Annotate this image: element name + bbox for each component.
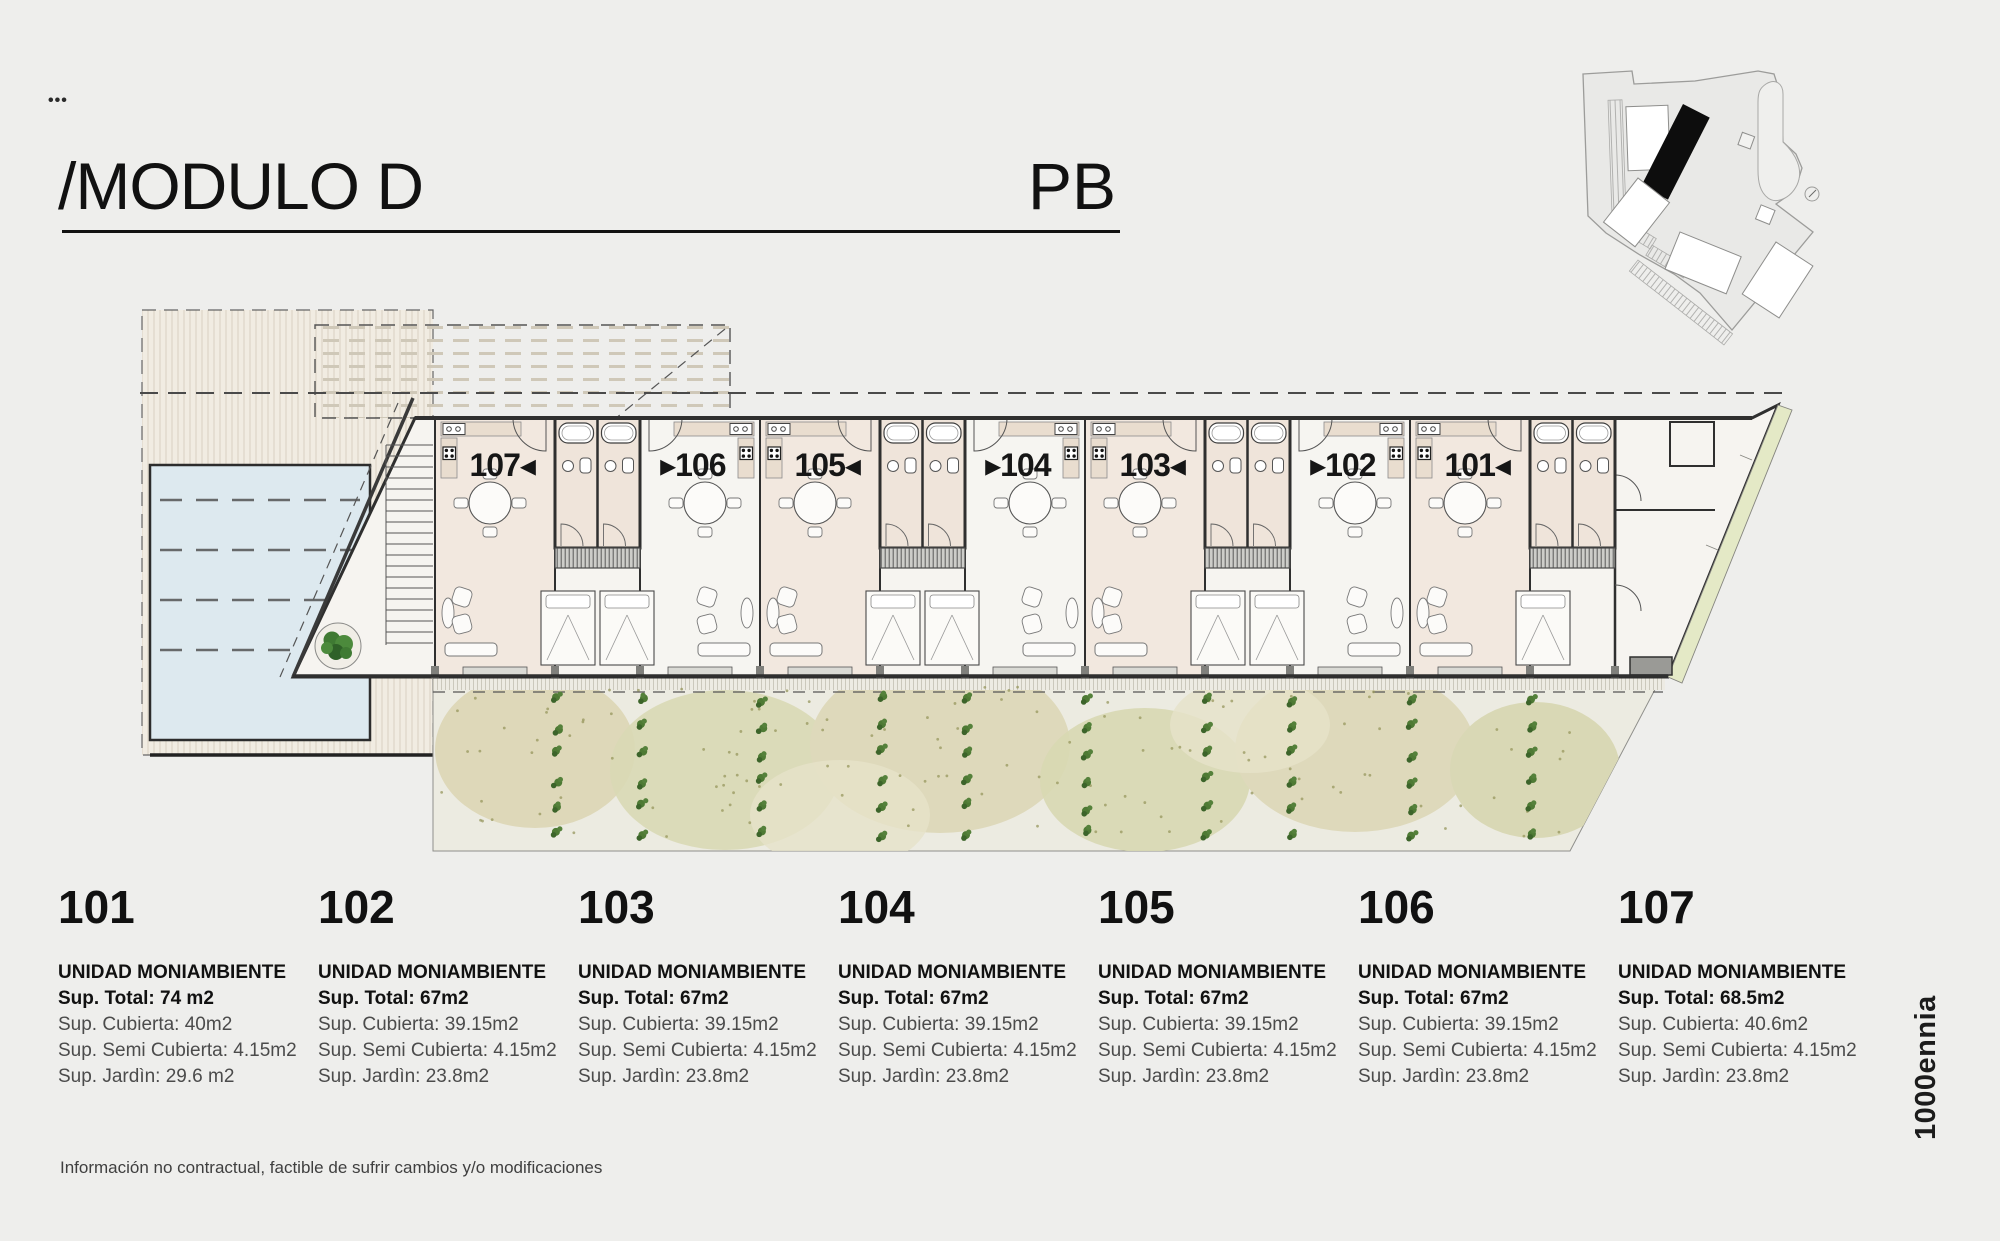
unit-covered-area: Sup. Cubierta: 39.15m2 [578,1012,838,1038]
units-summary: 101 UNIDAD MONIAMBIENTE Sup. Total: 74 m… [58,884,1908,1090]
plan-bathroom-block [1205,418,1290,568]
unit-summary-106: 106 UNIDAD MONIAMBIENTE Sup. Total: 67m2… [1358,884,1618,1090]
toilet [948,458,959,473]
unit-garden-area: Sup. Jardìn: 23.8m2 [1618,1064,1878,1090]
unit-covered-area: Sup. Cubierta: 39.15m2 [838,1012,1098,1038]
unit-type: UNIDAD MONIAMBIENTE [318,960,578,986]
title-underline [62,230,1120,233]
unit-garden-area: Sup. Jardìn: 23.8m2 [838,1064,1098,1090]
unit-semicovered-area: Sup. Semi Cubierta: 4.15m2 [578,1038,838,1064]
unit-total-area: Sup. Total: 67m2 [1098,986,1358,1012]
plan-unit-101: 101◂ [1410,418,1530,676]
unit-type: UNIDAD MONIAMBIENTE [578,960,838,986]
stove [1390,447,1403,460]
toilet [1555,458,1566,473]
unit-covered-area: Sup. Cubierta: 39.15m2 [318,1012,578,1038]
toilet [1598,458,1609,473]
unit-total-area: Sup. Total: 67m2 [1358,986,1618,1012]
plan-unit-label: 101◂ [1444,447,1510,483]
plan-unit-105: 105◂ [760,418,880,676]
toilet [1273,458,1284,473]
coffee-table [1391,598,1403,628]
dining-table [794,482,836,524]
toilet [905,458,916,473]
toilet [1230,458,1241,473]
unit-summary-102: 102 UNIDAD MONIAMBIENTE Sup. Total: 67m2… [318,884,578,1090]
unit-total-area: Sup. Total: 68.5m2 [1618,986,1878,1012]
toilet [580,458,591,473]
dining-table [1119,482,1161,524]
sofa [445,643,497,656]
bathroom-sink [1538,461,1549,472]
sofa [1420,643,1472,656]
tree [315,623,361,669]
unit-number: 103 [578,884,838,930]
stove [740,447,753,460]
floor-label: PB [1028,148,1116,224]
plan-bathroom-block [555,418,640,568]
unit-covered-area: Sup. Cubierta: 40.6m2 [1618,1012,1878,1038]
unit-summary-107: 107 UNIDAD MONIAMBIENTE Sup. Total: 68.5… [1618,884,1878,1090]
dining-table [1009,482,1051,524]
dining-table [1334,482,1376,524]
site-road-loop [1758,82,1800,201]
coffee-table [741,598,753,628]
plan-unit-label: 103◂ [1119,447,1185,483]
unit-summary-105: 105 UNIDAD MONIAMBIENTE Sup. Total: 67m2… [1098,884,1358,1090]
bathroom-sink [888,461,899,472]
unit-semicovered-area: Sup. Semi Cubierta: 4.15m2 [838,1038,1098,1064]
bathroom-sink [563,461,574,472]
disclaimer-text: Información no contractual, factible de … [60,1158,602,1178]
unit-type: UNIDAD MONIAMBIENTE [58,960,318,986]
dining-table [469,482,511,524]
coffee-table [1066,598,1078,628]
plan-unit-label: 107◂ [469,447,535,483]
plan-bathroom-block [880,418,965,568]
unit-total-area: Sup. Total: 67m2 [838,986,1098,1012]
unit-number: 106 [1358,884,1618,930]
unit-number: 102 [318,884,578,930]
unit-type: UNIDAD MONIAMBIENTE [838,960,1098,986]
dining-table [684,482,726,524]
plan-unit-label: ▸106 [660,447,726,483]
unit-number: 107 [1618,884,1878,930]
unit-type: UNIDAD MONIAMBIENTE [1098,960,1358,986]
bathroom-sink [1213,461,1224,472]
toilet [623,458,634,473]
plan-unit-106: ▸106 [640,418,760,676]
unit-semicovered-area: Sup. Semi Cubierta: 4.15m2 [58,1038,318,1064]
unit-number: 105 [1098,884,1358,930]
unit-semicovered-area: Sup. Semi Cubierta: 4.15m2 [1098,1038,1358,1064]
wardrobe [1205,548,1290,568]
upper-floor-overhang [315,325,730,418]
unit-garden-area: Sup. Jardìn: 23.8m2 [578,1064,838,1090]
wardrobe [880,548,965,568]
unit-total-area: Sup. Total: 74 m2 [58,986,318,1012]
dots-decoration: ••• [48,92,68,110]
plan-unit-label: ▸102 [1310,447,1376,483]
unit-number: 104 [838,884,1098,930]
unit-type: UNIDAD MONIAMBIENTE [1618,960,1878,986]
bathroom-sink [1255,461,1266,472]
sofa [1095,643,1147,656]
stove [1065,447,1078,460]
bathroom-sink [1580,461,1591,472]
sofa [698,643,750,656]
unit-number: 101 [58,884,318,930]
unit-semicovered-area: Sup. Semi Cubierta: 4.15m2 [318,1038,578,1064]
plan-unit-label: 105◂ [794,447,860,483]
dining-table [1444,482,1486,524]
sofa [770,643,822,656]
unit-garden-area: Sup. Jardìn: 23.8m2 [1098,1064,1358,1090]
sofa [1023,643,1075,656]
plan-unit-103: 103◂ [1085,418,1205,676]
unit-covered-area: Sup. Cubierta: 39.15m2 [1358,1012,1618,1038]
sofa [1348,643,1400,656]
wardrobe [555,548,640,568]
stove [1418,447,1431,460]
plan-unit-104: ▸104 [965,418,1085,676]
unit-total-area: Sup. Total: 67m2 [578,986,838,1012]
unit-summary-101: 101 UNIDAD MONIAMBIENTE Sup. Total: 74 m… [58,884,318,1090]
bathroom-sink [605,461,616,472]
page-title: /MODULO D [58,148,423,224]
stove [768,447,781,460]
plan-unit-label: ▸104 [985,447,1052,483]
unit-summary-104: 104 UNIDAD MONIAMBIENTE Sup. Total: 67m2… [838,884,1098,1090]
stove [1093,447,1106,460]
plan-unit-107: 107◂ [435,418,555,676]
unit-covered-area: Sup. Cubierta: 40m2 [58,1012,318,1038]
unit-garden-area: Sup. Jardìn: 23.8m2 [318,1064,578,1090]
unit-garden-area: Sup. Jardìn: 29.6 m2 [58,1064,318,1090]
unit-semicovered-area: Sup. Semi Cubierta: 4.15m2 [1618,1038,1878,1064]
plan-bathroom-block [1530,418,1615,568]
unit-covered-area: Sup. Cubierta: 39.15m2 [1098,1012,1358,1038]
stove [443,447,456,460]
floor-plan: 107◂▸106105◂▸104103◂▸102101◂ [140,295,1810,865]
unit-semicovered-area: Sup. Semi Cubierta: 4.15m2 [1358,1038,1618,1064]
wardrobe [1530,548,1615,568]
brand-logo: 1000ennia [1910,1000,1940,1140]
unit-summary-103: 103 UNIDAD MONIAMBIENTE Sup. Total: 67m2… [578,884,838,1090]
unit-type: UNIDAD MONIAMBIENTE [1358,960,1618,986]
bathroom-sink [930,461,941,472]
unit-garden-area: Sup. Jardìn: 23.8m2 [1358,1064,1618,1090]
plan-unit-102: ▸102 [1290,418,1410,676]
unit-total-area: Sup. Total: 67m2 [318,986,578,1012]
